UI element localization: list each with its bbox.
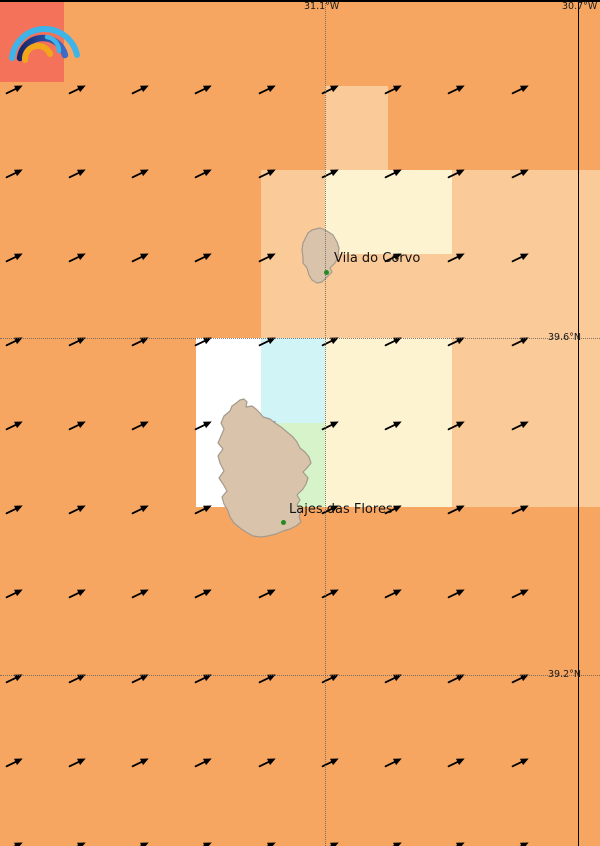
city-label[interactable]: Vila do Corvo xyxy=(334,251,420,267)
latitude-label-top: 39.6°N xyxy=(548,332,581,343)
latitude-label-bottom: 39.2°N xyxy=(548,669,581,680)
meteoblue-logo[interactable] xyxy=(0,0,86,70)
city-marker-dot[interactable] xyxy=(324,270,329,275)
longitude-label-left: 31.1°W xyxy=(304,1,339,12)
longitude-label-right: 30.7°W xyxy=(562,1,597,12)
rainbow-arcs-icon xyxy=(12,29,77,60)
places-layer: Vila do CorvoLajes das Flores xyxy=(0,0,600,846)
city-marker-dot[interactable] xyxy=(281,520,286,525)
city-label[interactable]: Lajes das Flores xyxy=(289,502,393,518)
wind-map[interactable]: Vila do CorvoLajes das Flores 31.1°W 30.… xyxy=(0,0,600,846)
